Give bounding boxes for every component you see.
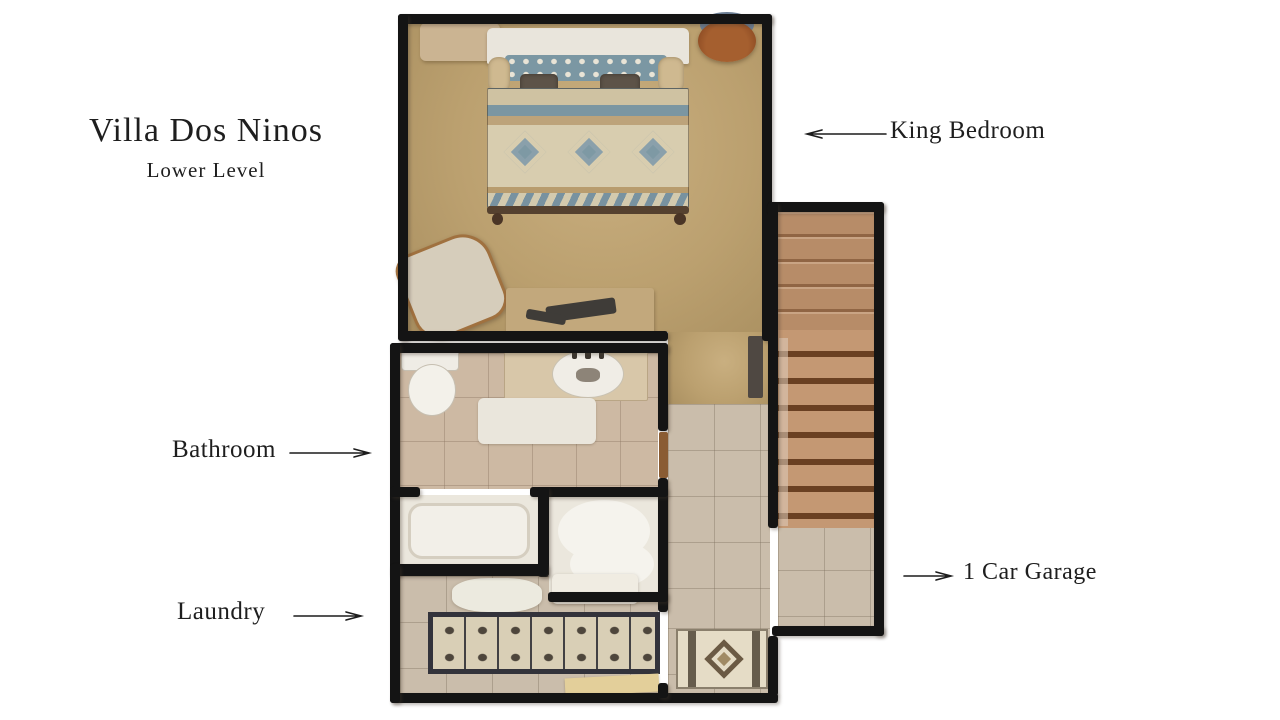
- arrow-right-icon-bathroom: [288, 445, 376, 461]
- wall-laundry-left: [390, 564, 400, 703]
- arrow-left-icon: [802, 126, 888, 142]
- plan-title: Villa Dos Ninos Lower Level: [80, 112, 332, 183]
- wall-shower-bottom: [548, 592, 668, 602]
- runner-rug: [428, 612, 660, 674]
- label-laundry: Laundry: [177, 598, 265, 626]
- sink-drain: [576, 368, 600, 382]
- bedroom-door: [748, 336, 763, 398]
- stairs-handrail: [779, 338, 788, 526]
- stairs-lower-flight: [778, 330, 874, 528]
- bath-mat: [478, 398, 596, 444]
- arrow-right-icon-garage: [902, 568, 958, 584]
- wall-right-exterior: [874, 202, 884, 636]
- arrow-right-icon-laundry: [292, 608, 368, 624]
- label-king-bedroom: King Bedroom: [890, 117, 1045, 145]
- bed-footboard: [487, 206, 689, 214]
- dresser: [506, 288, 654, 336]
- wall-laundry-right-stub: [658, 683, 668, 698]
- label-garage: 1 Car Garage: [963, 559, 1097, 586]
- stairs-upper-flight: [778, 212, 874, 330]
- wall-bathroom-left: [390, 343, 400, 576]
- bathroom-door: [659, 432, 668, 478]
- hallway-tile-under-stairs: [778, 524, 874, 628]
- bathtub: [408, 503, 530, 559]
- wall-bathroom-right-upper: [658, 343, 668, 431]
- wall-bedroom-top: [398, 14, 772, 24]
- wall-bedroom-left: [398, 14, 408, 341]
- title-text: Villa Dos Ninos: [80, 112, 332, 150]
- bed-blanket: [487, 88, 689, 208]
- wall-tub-stub: [390, 487, 420, 497]
- wall-garage-step-horizontal: [772, 626, 884, 636]
- wall-bathroom-top: [390, 343, 668, 353]
- hallway-tile: [668, 404, 770, 628]
- wall-stairs-top: [768, 202, 884, 212]
- bed-leg-left: [492, 213, 503, 225]
- planter-pot: [698, 20, 756, 62]
- wall-laundry-top: [390, 564, 548, 576]
- entry-rug: [676, 629, 768, 689]
- wall-garage-step-vertical: [768, 636, 778, 696]
- wall-stairs-left: [768, 202, 778, 528]
- label-bathroom: Bathroom: [172, 436, 276, 464]
- toilet-bowl: [408, 364, 456, 416]
- subtitle-text: Lower Level: [80, 158, 332, 183]
- wall-shower-top: [530, 487, 668, 497]
- bed-leg-right: [674, 213, 686, 225]
- wall-bottom-exterior: [390, 693, 778, 703]
- washer-top: [452, 578, 542, 612]
- wall-bedroom-bottom: [398, 331, 668, 341]
- floor-plan-page: Villa Dos Ninos Lower Level King Bedroom…: [0, 0, 1280, 720]
